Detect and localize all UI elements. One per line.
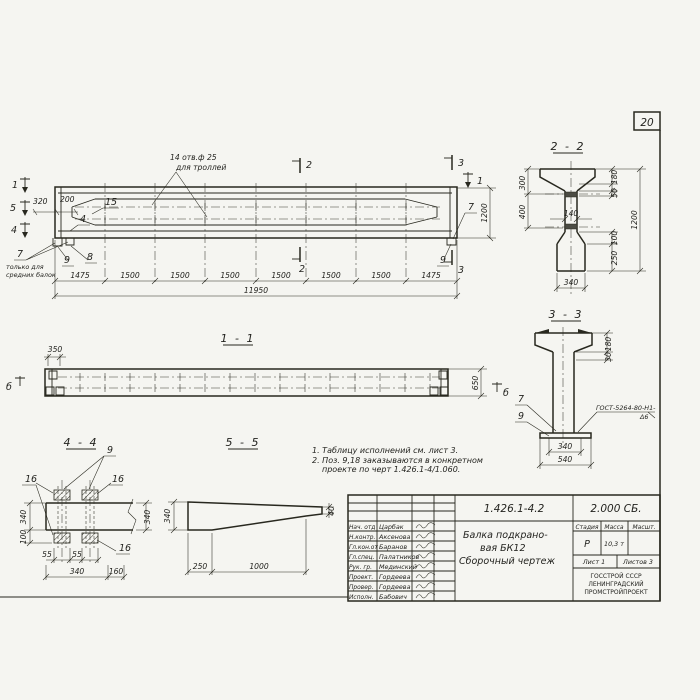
arrow-down-icon [22,232,28,238]
shim-plate-top [565,192,577,197]
section-3-3: 3 - 3 180 30 7 9 ГОСТ-5264-80-Н1- Δ6 340… [515,308,656,469]
sig-name-1: Царбак [379,523,404,531]
pos-9-44: 9 [107,445,113,456]
dim-1200-22: 1200 [630,210,639,229]
dim-seg-2: 1500 [120,271,139,280]
dim-350: 350 [48,345,63,354]
sig-role-3: Гл.кон.от [349,545,378,551]
dim-160: 160 [109,567,124,576]
stage-value: Р [584,539,590,550]
dim-250-22: 250 [610,251,619,266]
note-line-3: проекте по черт 1.426.1-4/1.060. [322,465,460,474]
cut-marker-1-left: 1 [12,180,18,191]
sheet-frame: 20 [0,112,660,601]
dim-650: 650 [471,376,480,391]
pos-16-left: 16 [25,474,37,485]
dim-40: 40 [327,506,336,516]
col-mass: Масса [604,524,623,531]
dim-30: 30 [604,352,613,362]
title-block: 1.426.1-4.2 2.000 СБ. Нач. отд Царбак Н.… [348,495,660,601]
marker-b-left: б [6,382,12,393]
dim-340-22: 340 [564,278,579,287]
dim-340-44-right: 340 [143,510,152,525]
section-marker-2-bottom: 2 [299,264,305,275]
cut-marker-5: 5 [10,203,16,214]
doc-code: 2.000 СБ. [590,503,641,515]
org-line-2: ЛЕНИНГРАДСКИЙ [588,581,643,588]
sig-role-4: Гл.спец. [349,555,375,561]
view-5-5: 5 - 5 340 40 250 1000 [163,436,336,575]
arrow-down-icon [465,182,471,188]
pos-label-7: 7 [17,249,23,260]
dim-320: 320 [33,197,48,206]
dim-100-44: 100 [19,530,28,545]
dim-400: 400 [518,205,527,220]
pos-label-15: 15 [105,197,117,208]
pos-label-9: 9 [64,255,70,266]
org-line-3: ПРОМСТРОЙПРОЕКТ [584,589,648,596]
dim-340-44-left: 340 [19,510,28,525]
pos-7-note-2: средних балок [6,271,56,279]
section-marker-2-top: 2 [306,160,312,171]
dim-seg-8: 1475 [421,271,440,280]
sig-name-3: Баранов [379,543,407,551]
view-1-1: 1 - 1 350 650 б б [6,332,509,399]
dim-180-22: 180 [610,170,619,185]
section-marker-3-bottom: 3 [458,265,464,276]
pos-label-4: 4 [80,214,86,225]
sig-role-5: Рук. гр. [349,565,372,571]
notes: 1. Таблицу исполнений см. лист 3. 2. Поз… [312,446,483,474]
sig-name-6: Гордеева [379,573,411,581]
view-4-4: 4 - 4 9 16 16 16 340 100 340 55 55 340 1… [19,436,152,580]
arrow-down-icon [22,210,28,216]
dim-total-11950: 11950 [244,286,268,295]
cut-marker-4: 4 [11,225,17,236]
org-line-1: ГОССТРОЙ СССР [590,573,642,580]
weld-note-2: Δ6 [639,413,648,421]
section-2-2: 2 - 2 300 400 140 180 50 100 250 1200 34… [518,140,646,296]
sheet-info: Лист 1 [582,558,605,566]
section-2-2-title: 2 - 2 [551,140,586,153]
pos-9-33: 9 [518,411,524,422]
pos-label-8: 8 [87,252,93,263]
dim-100-22: 100 [610,231,619,246]
dim-300: 300 [518,176,527,191]
view-1-1-title: 1 - 1 [221,332,256,345]
drawing-title-2: вая БК12 [480,543,526,554]
dim-seg-7: 1500 [371,271,390,280]
dim-50: 50 [610,188,619,198]
col-stage: Стадия [575,524,598,531]
dim-250: 250 [193,562,208,571]
sig-name-8: Бабович [379,593,407,601]
dim-55-2: 55 [72,550,82,559]
dim-140: 140 [564,209,579,218]
dim-340-55: 340 [163,509,172,524]
note-line-2: 2. Поз. 9,18 заказываются в конкретном [312,456,483,465]
drawing-title-1: Балка подкрано- [463,530,548,541]
marker-b-right: б [503,388,509,399]
weld-note-1: ГОСТ-5264-80-Н1- [596,404,656,412]
dim-seg-6: 1500 [321,271,340,280]
dim-1200-main: 1200 [480,203,489,222]
section-marker-3-top: 3 [458,158,464,169]
pos-16-right: 16 [112,474,124,485]
sig-name-4: Палатников [379,553,420,561]
dim-200: 200 [60,195,75,204]
dim-180-33: 180 [604,337,613,352]
sig-role-2: Н.контр. [349,535,375,541]
dim-340-44-bottom: 340 [70,567,85,576]
col-scale: Масшт. [632,524,655,531]
doc-number: 1.426.1-4.2 [484,503,545,515]
page-number: 20 [640,117,654,129]
cut-marker-1-right: 1 [477,176,483,187]
dim-1000: 1000 [249,562,268,571]
drawing-title-3: Сборочный чертеж [459,556,556,567]
dim-seg-3: 1500 [170,271,189,280]
dim-seg-5: 1500 [271,271,290,280]
view-5-5-title: 5 - 5 [226,436,261,449]
sig-name-7: Гордеева [379,583,411,591]
dim-55-1: 55 [42,550,52,559]
drawing-sheet: 20 14 отв.ф 25 для троллей 1 5 4 1 2 2 3… [0,0,700,700]
sig-name-2: Аксенова [378,533,411,541]
holes-note-line2: для троллей [175,163,226,172]
sig-name-5: Мединский [379,563,417,571]
mass-value: 10,3 т [604,540,624,548]
arrow-down-icon [22,187,28,193]
sheets-info: Листов 3 [622,558,653,566]
main-elevation-view: 14 отв.ф 25 для троллей 1 5 4 1 2 2 3 3 … [6,153,496,299]
section-3-3-title: 3 - 3 [549,308,584,321]
pos-7-33: 7 [518,394,524,405]
dim-340-33: 340 [558,442,573,451]
sig-role-7: Провер. [349,585,374,591]
pos-label-7-right: 7 [468,202,474,213]
dim-540: 540 [558,455,573,464]
pos-7-note-1: только для [6,263,44,271]
drawing-canvas: 20 14 отв.ф 25 для троллей 1 5 4 1 2 2 3… [0,0,700,700]
note-line-1: 1. Таблицу исполнений см. лист 3. [312,446,458,455]
dim-seg-4: 1500 [220,271,239,280]
view-4-4-title: 4 - 4 [64,436,99,449]
sig-role-8: Исполн. [349,595,374,601]
shim-plate-bottom [565,224,577,229]
holes-note-line1: 14 отв.ф 25 [170,153,217,162]
pos-16-bottom: 16 [119,543,131,554]
dim-seg-1: 1475 [70,271,89,280]
sig-role-1: Нач. отд [349,525,375,531]
sig-role-6: Проект. [349,575,373,581]
